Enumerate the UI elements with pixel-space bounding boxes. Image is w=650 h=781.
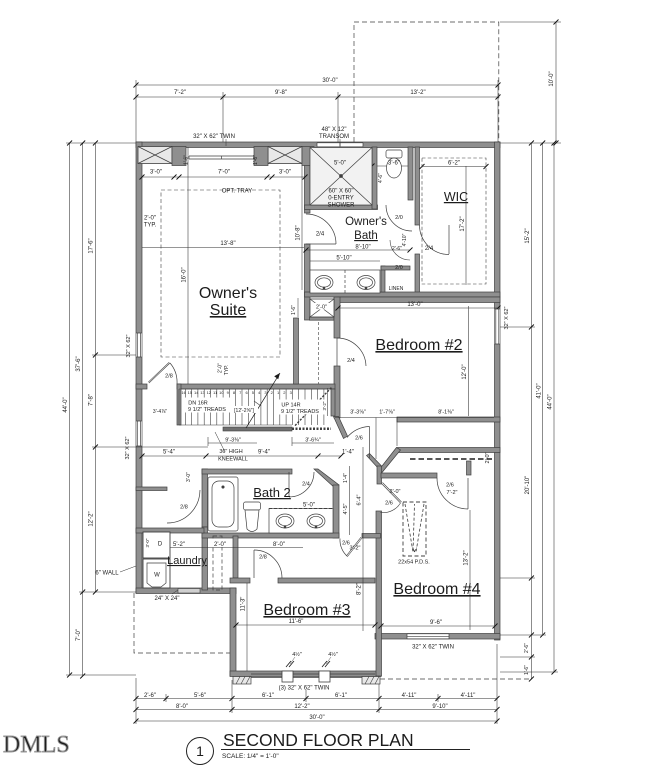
svg-text:9 1/2" TREADS: 9 1/2" TREADS: [188, 407, 226, 413]
svg-text:Bath 2: Bath 2: [253, 485, 291, 500]
svg-text:5'-0": 5'-0": [334, 161, 346, 167]
svg-text:32" X 62": 32" X 62": [126, 335, 132, 358]
svg-text:10'-8": 10'-8": [296, 225, 302, 240]
svg-text:Bedroom #2: Bedroom #2: [375, 337, 462, 354]
svg-text:TYP.: TYP.: [224, 365, 230, 375]
svg-text:2'-0": 2'-0": [316, 305, 327, 311]
svg-text:13'-2": 13'-2": [464, 550, 470, 565]
svg-text:7'-0": 7'-0": [218, 170, 230, 176]
svg-text:Owner's: Owner's: [199, 285, 257, 302]
svg-text:2/0: 2/0: [395, 215, 403, 221]
svg-text:4'-5": 4'-5": [343, 503, 349, 514]
svg-text:KNEEWALL: KNEEWALL: [218, 457, 248, 463]
svg-text:(3) 32" X 62" TWIN: (3) 32" X 62" TWIN: [279, 686, 330, 692]
svg-text:2'-6": 2'-6": [524, 643, 530, 653]
svg-text:17'-2": 17'-2": [460, 216, 466, 231]
svg-text:20'-10": 20'-10": [525, 476, 531, 495]
svg-text:36" HIGH: 36" HIGH: [219, 449, 242, 455]
svg-text:7'-0": 7'-0": [76, 629, 82, 641]
svg-text:5'-0": 5'-0": [303, 503, 315, 509]
svg-text:2'-6": 2'-6": [144, 693, 156, 699]
svg-text:UP 14R: UP 14R: [281, 403, 300, 409]
svg-text:32" X 62" TWIN: 32" X 62" TWIN: [412, 645, 454, 651]
svg-text:0-ENTRY: 0-ENTRY: [328, 196, 354, 202]
svg-text:24" X 24": 24" X 24": [155, 596, 180, 602]
svg-text:3'-0": 3'-0": [150, 170, 162, 176]
svg-text:4'-11": 4'-11": [402, 693, 417, 699]
svg-text:DN 16R: DN 16R: [188, 401, 208, 407]
svg-text:37'-6": 37'-6": [76, 356, 82, 371]
svg-text:[12'-2⅝"]: [12'-2⅝"]: [234, 408, 254, 414]
svg-text:8'-0": 8'-0": [273, 542, 285, 548]
svg-text:3'-3⅝": 3'-3⅝": [350, 410, 366, 416]
svg-text:3'-2": 3'-2": [350, 546, 361, 552]
svg-text:OPT. TRAY: OPT. TRAY: [222, 189, 252, 195]
svg-text:11'-6": 11'-6": [289, 619, 304, 625]
svg-text:WIC: WIC: [444, 190, 468, 204]
svg-text:30'-0": 30'-0": [322, 78, 337, 84]
svg-text:4'-6": 4'-6": [378, 173, 384, 183]
svg-text:15'-2": 15'-2": [525, 228, 531, 243]
svg-text:1'-6": 1'-6": [524, 665, 530, 675]
svg-text:3'-0": 3'-0": [279, 170, 291, 176]
svg-text:32" X 62": 32" X 62": [504, 307, 510, 330]
svg-text:DMLS: DMLS: [3, 732, 70, 758]
svg-text:6'-1": 6'-1": [335, 693, 347, 699]
svg-text:3'-6¾": 3'-6¾": [305, 438, 321, 444]
svg-text:1'-6": 1'-6": [291, 305, 297, 315]
svg-text:4'-10": 4'-10": [402, 233, 408, 246]
svg-text:6'-1": 6'-1": [262, 693, 274, 699]
svg-text:32" X 62": 32" X 62": [125, 437, 131, 460]
svg-text:2/6: 2/6: [355, 436, 363, 442]
svg-text:2'-6": 2'-6": [392, 246, 402, 252]
svg-text:9'-10": 9'-10": [432, 704, 447, 710]
svg-text:48" X 12": 48" X 12": [322, 127, 347, 133]
svg-text:2'-0": 2'-0": [485, 452, 491, 463]
svg-text:22x54 P.D.S.: 22x54 P.D.S.: [398, 560, 430, 566]
svg-text:41'-0": 41'-0": [537, 383, 543, 398]
svg-text:16: 16: [181, 390, 186, 395]
svg-text:44'-0": 44'-0": [548, 394, 554, 409]
svg-text:2/4: 2/4: [316, 232, 325, 238]
svg-text:16'-0": 16'-0": [182, 267, 188, 282]
svg-text:13'-2": 13'-2": [410, 90, 425, 96]
svg-text:2/4: 2/4: [302, 482, 310, 488]
svg-text:2'-0": 2'-0": [218, 363, 224, 373]
svg-text:8'-10": 8'-10": [355, 245, 370, 251]
svg-text:44'-0": 44'-0": [63, 397, 69, 412]
svg-text:32" X 62" TWIN: 32" X 62" TWIN: [193, 134, 235, 140]
svg-text:W: W: [154, 573, 160, 579]
svg-text:13'-8": 13'-8": [220, 241, 235, 247]
svg-text:8'-0": 8'-0": [176, 704, 188, 710]
svg-text:15: 15: [188, 390, 193, 395]
svg-text:2/6: 2/6: [446, 483, 454, 489]
svg-text:2/8: 2/8: [259, 555, 267, 561]
svg-text:9'-6": 9'-6": [430, 620, 442, 626]
svg-text:2/4: 2/4: [347, 358, 355, 364]
svg-text:12'-2": 12'-2": [294, 704, 309, 710]
svg-text:4½": 4½": [328, 651, 338, 658]
svg-text:LINEN: LINEN: [389, 286, 404, 292]
svg-text:SECOND FLOOR PLAN: SECOND FLOOR PLAN: [223, 730, 414, 750]
svg-text:4½": 4½": [292, 651, 302, 658]
svg-text:1'-4": 1'-4": [342, 450, 354, 456]
svg-text:6'-4": 6'-4": [357, 494, 363, 505]
svg-text:3'-4⅞": 3'-4⅞": [153, 409, 167, 415]
svg-text:TYP.: TYP.: [144, 223, 157, 229]
svg-text:Bath: Bath: [354, 230, 378, 242]
svg-text:30'-0": 30'-0": [309, 715, 324, 721]
svg-text:TRANSOM: TRANSOM: [319, 134, 349, 140]
svg-text:2'-0": 2'-0": [144, 216, 156, 222]
svg-text:2'-0": 2'-0": [214, 542, 226, 548]
svg-text:13: 13: [200, 390, 205, 395]
svg-text:2/6: 2/6: [385, 501, 393, 507]
svg-text:12'-2": 12'-2": [89, 511, 95, 526]
svg-text:Bedroom #3: Bedroom #3: [263, 602, 350, 619]
svg-text:Owner's: Owner's: [345, 216, 387, 228]
svg-text:7'-2": 7'-2": [447, 490, 458, 496]
svg-text:10'-0": 10'-0": [549, 71, 555, 86]
svg-text:5'-2": 5'-2": [173, 542, 185, 548]
svg-text:17'-6": 17'-6": [89, 238, 95, 253]
svg-text:2'-0": 2'-0": [390, 489, 401, 495]
svg-text:SCALE: 1/4" = 1'-0": SCALE: 1/4" = 1'-0": [222, 753, 279, 760]
svg-text:5'-6": 5'-6": [194, 693, 206, 699]
svg-text:1: 1: [196, 743, 204, 759]
svg-text:2/8: 2/8: [180, 505, 188, 511]
svg-text:2/0: 2/0: [395, 265, 403, 271]
svg-text:4'-11": 4'-11": [461, 693, 476, 699]
svg-text:7'-2": 7'-2": [174, 90, 186, 96]
svg-text:5'-4": 5'-4": [163, 450, 175, 456]
svg-text:6'-2": 6'-2": [448, 161, 460, 167]
svg-text:1'-7⅝": 1'-7⅝": [379, 410, 395, 416]
svg-text:9'-3⅜": 9'-3⅜": [225, 438, 241, 444]
svg-text:13'-0": 13'-0": [407, 302, 422, 308]
svg-text:D: D: [158, 542, 163, 548]
svg-text:7'-8": 7'-8": [89, 394, 95, 406]
svg-text:10: 10: [219, 390, 224, 395]
svg-text:Laundry: Laundry: [167, 555, 207, 567]
svg-text:3'-0": 3'-0": [186, 472, 192, 482]
svg-text:3'-0": 3'-0": [145, 538, 150, 547]
svg-text:1'-6": 1'-6": [253, 155, 259, 165]
svg-text:2/8: 2/8: [165, 374, 173, 380]
svg-text:60" X 60": 60" X 60": [329, 189, 354, 195]
svg-text:9'-4": 9'-4": [258, 450, 270, 456]
svg-text:8'-2": 8'-2": [357, 583, 363, 595]
svg-text:Suite: Suite: [210, 302, 247, 319]
svg-text:Bedroom #4: Bedroom #4: [393, 581, 480, 598]
svg-text:8'-1⅜": 8'-1⅜": [438, 410, 454, 416]
svg-text:1'-6": 1'-6": [184, 155, 190, 165]
svg-text:11'-3": 11'-3": [241, 597, 247, 612]
svg-text:SHOWER: SHOWER: [328, 203, 356, 209]
svg-text:12'-0": 12'-0": [462, 364, 468, 379]
svg-text:12: 12: [207, 390, 212, 395]
svg-text:3'-6": 3'-6": [388, 161, 400, 167]
svg-text:3'-2": 3'-2": [322, 401, 327, 410]
svg-text:5'-10": 5'-10": [336, 256, 351, 262]
svg-text:6" WALL: 6" WALL: [95, 571, 119, 577]
svg-text:14: 14: [194, 390, 199, 395]
svg-text:1'-4": 1'-4": [343, 473, 349, 483]
svg-text:9 1/2" TREADS: 9 1/2" TREADS: [281, 409, 319, 415]
svg-text:9'-8": 9'-8": [275, 90, 287, 96]
svg-text:2/4: 2/4: [425, 246, 434, 252]
